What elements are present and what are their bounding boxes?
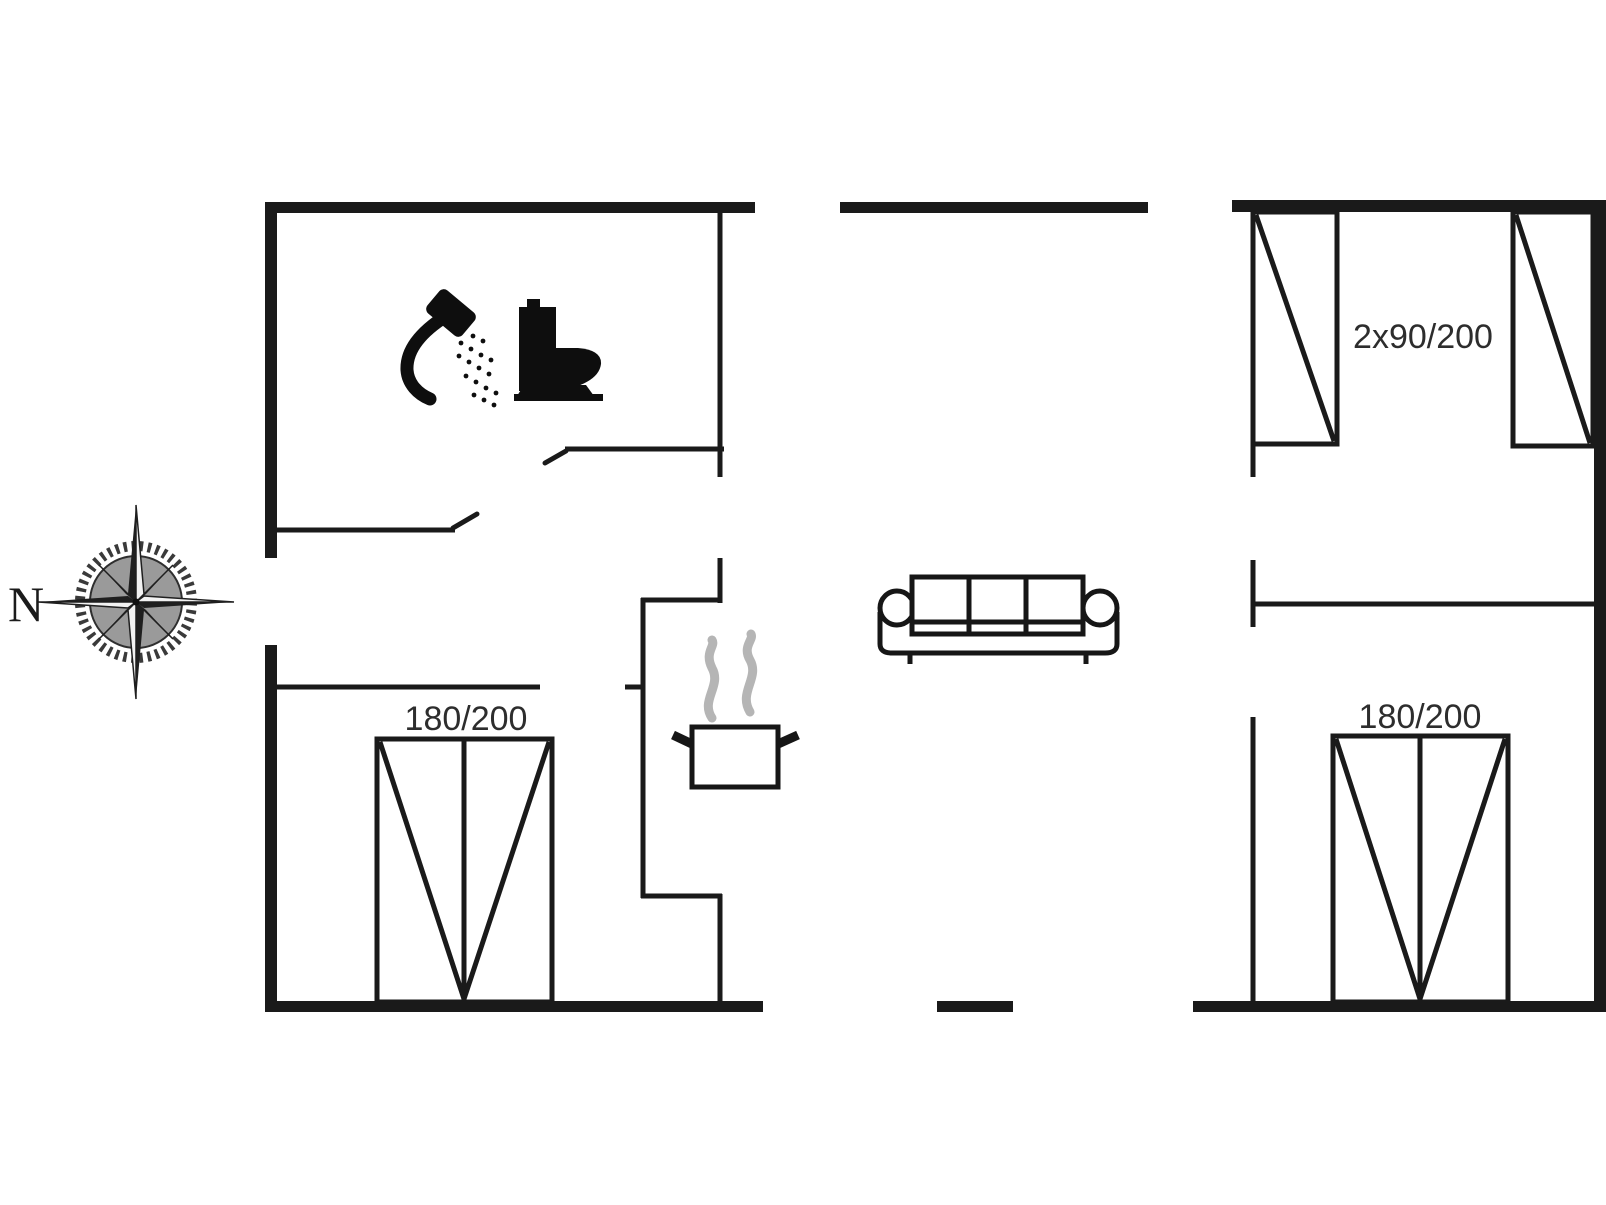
wall-left-building-left-lower xyxy=(265,645,277,1012)
shower-icon xyxy=(407,287,498,408)
floor-plan-svg: 2x90/200 180/200 180/200 xyxy=(0,0,1606,1205)
north-label: N xyxy=(8,576,44,632)
wall-center-bottom-stub xyxy=(937,1001,1013,1012)
bed-label-bottom-right: 180/200 xyxy=(1359,698,1482,736)
bathroom-door-leaf-lower xyxy=(453,514,477,528)
bed-double-bottom-left xyxy=(377,739,552,1002)
bed-double-bottom-right xyxy=(1333,736,1508,1002)
wall-right-building-right xyxy=(1594,200,1606,1012)
bed-single-top-left xyxy=(1253,212,1337,444)
shower-spray xyxy=(457,328,499,408)
wall-left-building-left-upper xyxy=(265,202,277,558)
bed-single-top-right xyxy=(1513,212,1593,446)
steam-icon xyxy=(708,634,752,718)
bathroom-door-leaf-upper xyxy=(545,451,566,463)
sofa-icon xyxy=(880,577,1117,664)
wall-left-building-top xyxy=(265,202,755,213)
wall-center-top xyxy=(840,202,1148,213)
cooking-pot-icon xyxy=(673,727,798,787)
toilet-icon xyxy=(514,299,603,401)
bed-label-bottom-left: 180/200 xyxy=(405,700,528,738)
floor-plan: 2x90/200 180/200 180/200 xyxy=(0,0,1606,1205)
compass-rose-icon xyxy=(38,505,234,699)
bed-label-top-right: 2x90/200 xyxy=(1353,318,1493,356)
